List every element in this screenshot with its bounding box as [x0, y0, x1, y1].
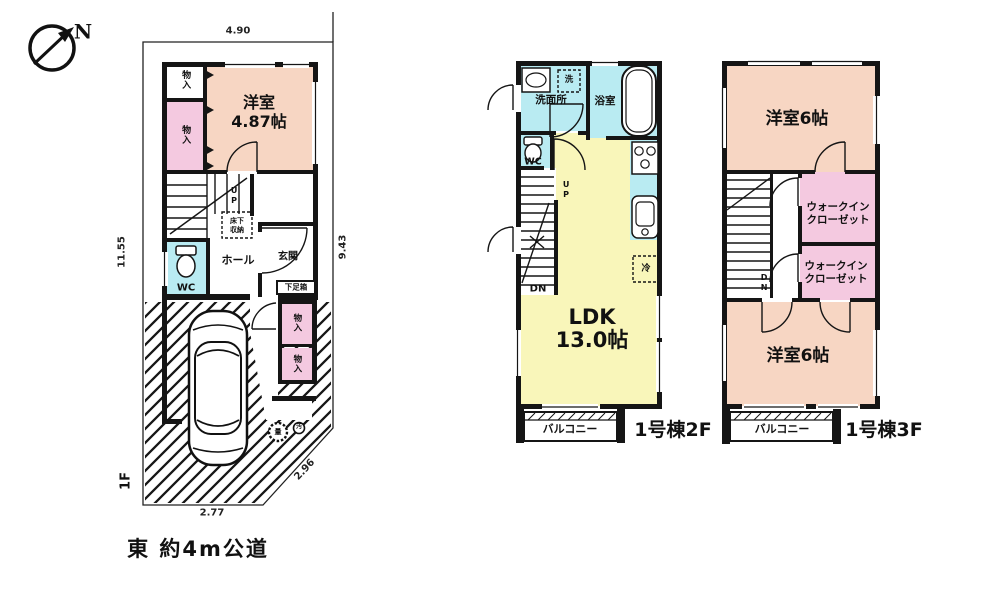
f1-shoebox-label: 下足箱 [285, 283, 308, 292]
f1-dim-left: 11.55 [116, 236, 128, 268]
f2-bath-label: 浴室 [595, 95, 616, 107]
f3-name-label: 1号棟3F [845, 420, 922, 442]
f3-wic1-label-2: クローゼット [807, 214, 870, 226]
f1-underfloor-label-2: 収納 [230, 226, 244, 234]
f1-closet3-label: 物入 [291, 314, 301, 333]
floor3-stairs [727, 178, 770, 288]
f1-up-label: UP [229, 186, 238, 206]
f1-dim-bottom: 2.77 [200, 507, 225, 519]
f3-wic1-label-1: ウォークイン [807, 201, 870, 213]
f1-closet2-label: 物入 [180, 125, 190, 145]
floor-plan-sheet: N 物入 物入 洋室 4.87帖 UP 床下 収納 ホール 玄関 WC 下足箱 … [0, 0, 1000, 611]
f2-ldk-label: LDK [568, 305, 615, 329]
f2-washroom-label: 洗面所 [535, 94, 567, 106]
f2-fridge-label: 冷 [641, 264, 650, 274]
f2-name-label: 1号棟2F [634, 420, 711, 442]
f1-hall-label: ホール [222, 255, 255, 268]
f1-room-size-label: 4.87帖 [231, 113, 286, 131]
stove-icon [632, 142, 658, 174]
kitchen-sink-icon [632, 196, 658, 238]
toilet-icon-1f [176, 246, 196, 277]
f1-dim-right: 9.43 [337, 235, 349, 260]
f1-closet1-label: 物入 [180, 70, 190, 90]
f1-room-label: 洋室 [243, 94, 275, 112]
f1-wc-label: WC [177, 282, 195, 294]
f2-balcony-label: バルコニー [543, 424, 598, 437]
f2-dn-label: DN [530, 283, 547, 295]
f2-up-label: UP [561, 180, 570, 200]
compass-north-label: N [74, 21, 92, 44]
f1-closet4-label: 物入 [291, 355, 301, 374]
road-note: 東 約4m公道 [127, 537, 269, 561]
bathtub-icon [622, 66, 656, 136]
f3-wic2-label-2: クローゼット [805, 273, 868, 285]
f1-drain-meter-label: 汚 [296, 425, 302, 432]
f3-room-bottom-label: 洋室6帖 [767, 347, 830, 367]
car-icon [189, 311, 247, 465]
f1-underfloor-label-1: 床下 [230, 217, 244, 225]
f1-water-meter-label: 量 [275, 428, 282, 436]
f1-floor-label: 1F [120, 472, 135, 490]
f1-dim-top: 4.90 [226, 25, 251, 37]
f3-dn-label: DN [759, 273, 768, 293]
f3-wic2-label-1: ウォークイン [805, 260, 868, 272]
f1-entrance-label: 玄関 [278, 251, 298, 263]
f3-room-top-label: 洋室6帖 [766, 110, 829, 130]
f2-wc-label: WC [524, 158, 541, 169]
vanity-sink-icon [522, 68, 550, 92]
floor-plan-drawing [0, 0, 1000, 611]
f3-balcony-label: バルコニー [755, 424, 810, 437]
f2-washer-label: 洗 [565, 76, 574, 86]
f2-ldk-size-label: 13.0帖 [556, 328, 629, 352]
compass-icon [30, 26, 74, 70]
